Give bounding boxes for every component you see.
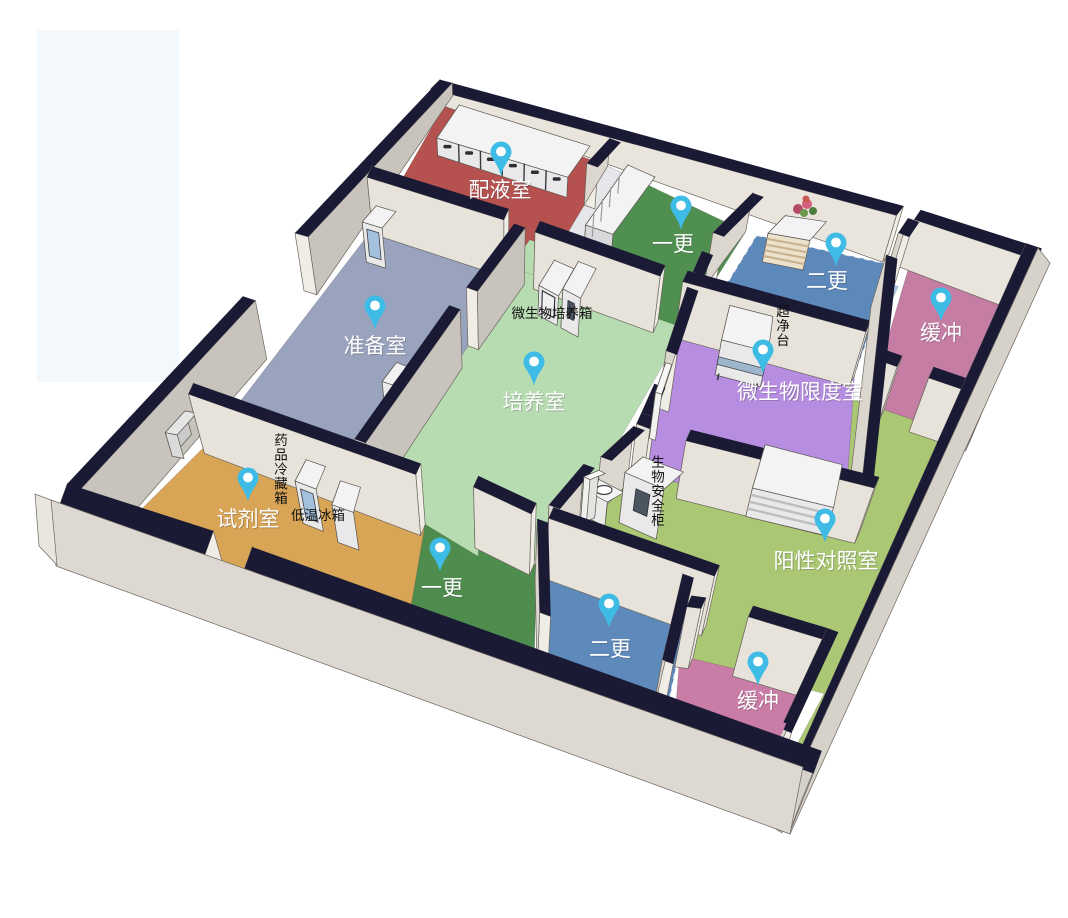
- svg-text:药品冷藏箱: 药品冷藏箱: [274, 433, 288, 506]
- svg-text:缓冲: 缓冲: [920, 322, 962, 345]
- svg-text:二更: 二更: [589, 638, 631, 661]
- svg-text:生物安全柜: 生物安全柜: [651, 455, 665, 528]
- svg-text:缓冲: 缓冲: [737, 690, 779, 713]
- svg-text:微生物培养箱: 微生物培养箱: [512, 306, 593, 321]
- svg-text:配液室: 配液室: [469, 179, 532, 202]
- svg-text:培养室: 培养室: [503, 391, 566, 414]
- svg-text:一更: 一更: [421, 577, 463, 600]
- svg-text:一更: 一更: [652, 233, 694, 256]
- svg-text:微生物限度室: 微生物限度室: [737, 381, 863, 404]
- svg-text:二更: 二更: [806, 270, 848, 293]
- svg-text:阳性对照室: 阳性对照室: [774, 550, 879, 573]
- svg-text:低温冰箱: 低温冰箱: [291, 508, 345, 523]
- svg-text:超净台: 超净台: [776, 304, 790, 348]
- svg-text:试剂室: 试剂室: [217, 508, 280, 531]
- svg-text:准备室: 准备室: [344, 335, 407, 358]
